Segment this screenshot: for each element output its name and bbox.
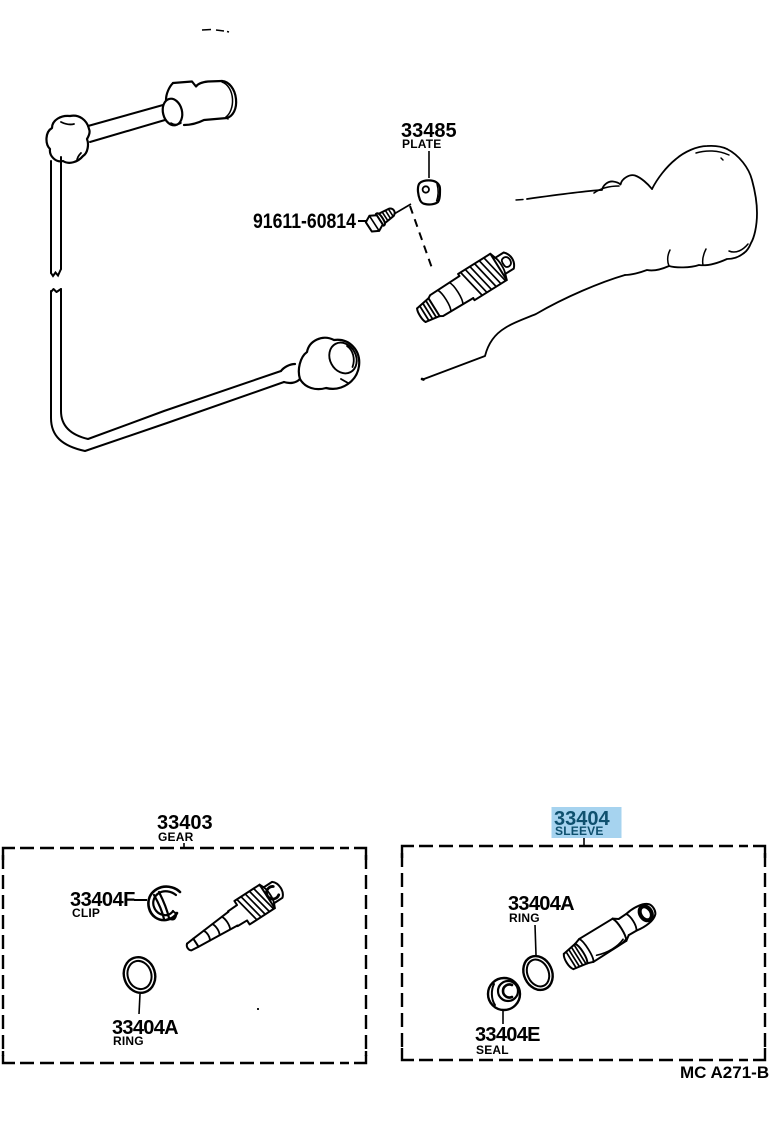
svg-text:PLATE: PLATE — [402, 137, 441, 151]
svg-text:RING: RING — [113, 1034, 144, 1048]
svg-text:SEAL: SEAL — [476, 1043, 509, 1057]
svg-text:91611-60814: 91611-60814 — [253, 210, 356, 234]
svg-text:MC A271-B: MC A271-B — [680, 1063, 769, 1082]
svg-text:RING: RING — [509, 911, 540, 925]
svg-text:CLIP: CLIP — [72, 906, 100, 920]
svg-text:GEAR: GEAR — [158, 830, 194, 844]
svg-text:SLEEVE: SLEEVE — [555, 824, 604, 838]
